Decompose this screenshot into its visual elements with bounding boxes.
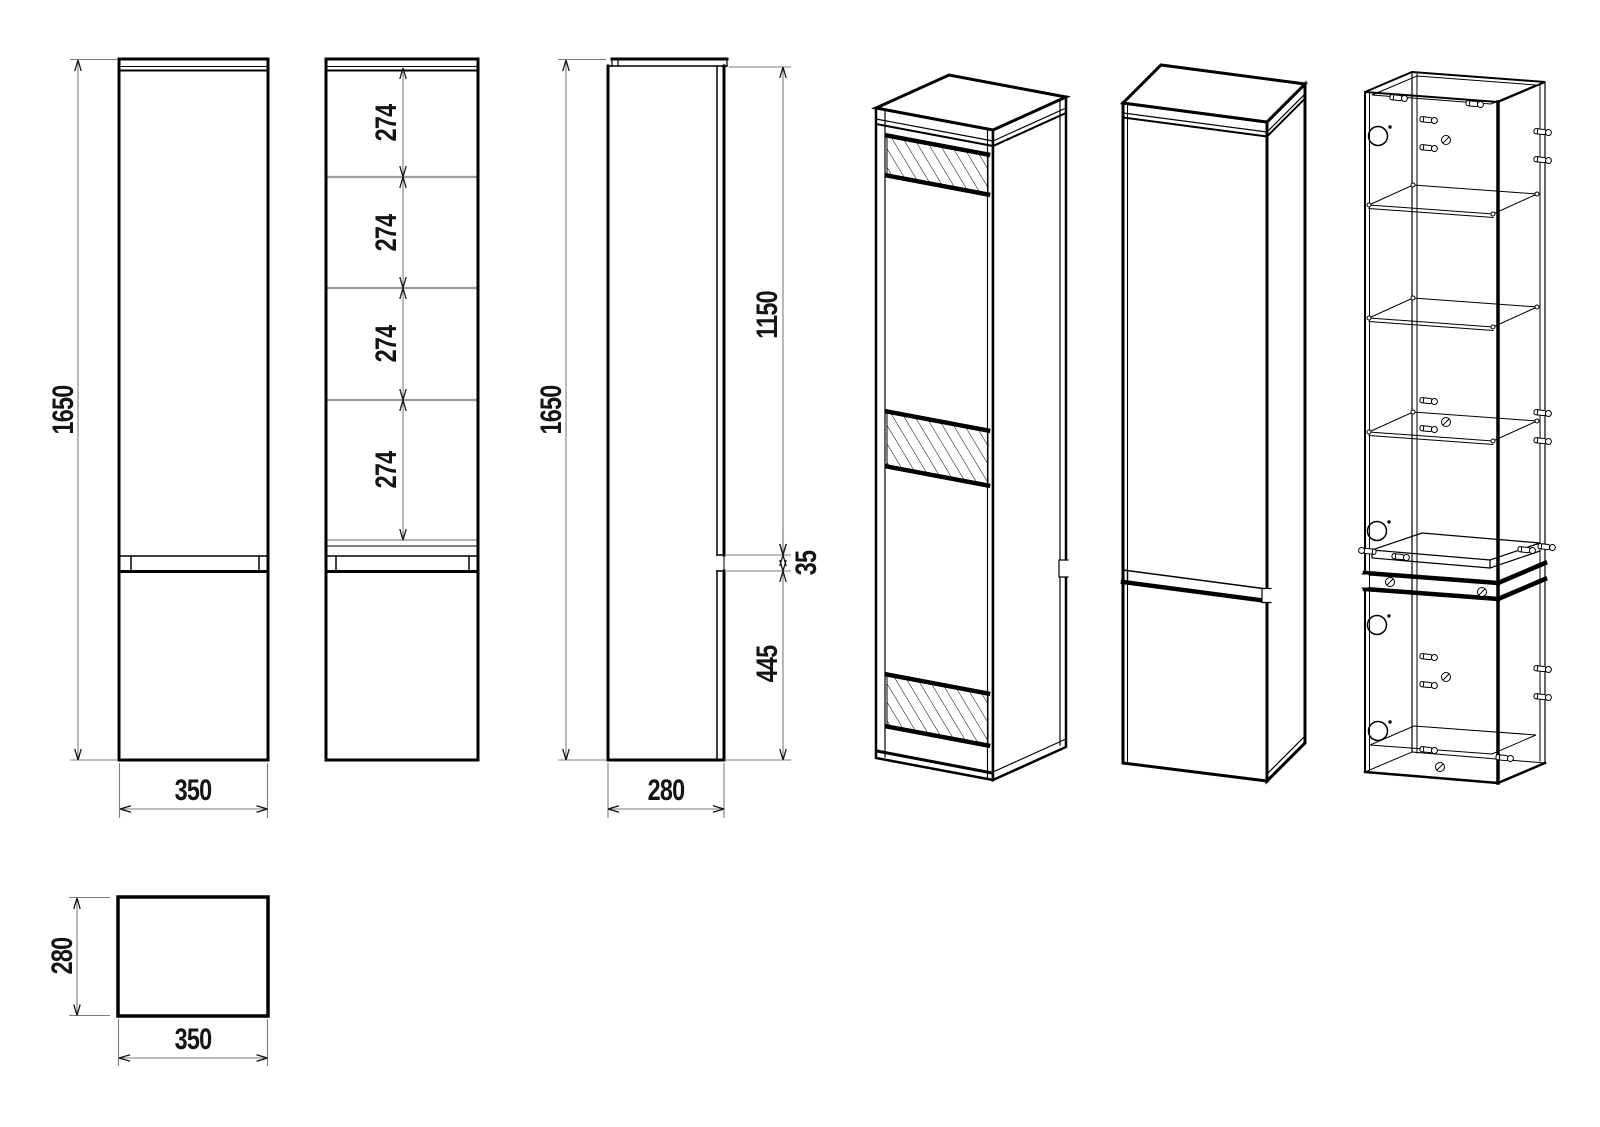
front-view: 1650 350 [46, 59, 268, 818]
screw-icon [1442, 136, 1451, 145]
technical-drawing-canvas: 1650 350 2 [0, 0, 1600, 1127]
dowel-pin-icon [1420, 653, 1438, 661]
hinge-hole [1369, 722, 1388, 741]
dowel-pin-icon [1518, 546, 1536, 554]
dowel-pin-icon [1534, 437, 1552, 445]
side-view: 1650 1150 35 445 280 [534, 59, 822, 818]
side-lower-label: 445 [750, 645, 783, 683]
iso3-bottom-front-edges [1365, 763, 1545, 783]
iso-view-wireframe [1358, 72, 1555, 783]
dowel-pin-icon [1420, 397, 1438, 405]
topview-width-label: 350 [175, 1022, 212, 1055]
iso2-front-face [1123, 103, 1267, 781]
front-height-dimension: 1650 [46, 60, 117, 761]
side-groove-dimension: 35 445 [726, 528, 823, 760]
dowel-pin-icon [1420, 681, 1438, 689]
top-width-dimension: 350 [119, 1019, 268, 1066]
iso-view-solid [1123, 65, 1305, 781]
side-height-dimension: 1650 [534, 60, 606, 761]
dowel-pin-icon [1358, 547, 1376, 555]
screw-icon [1442, 673, 1451, 682]
side-depth-dimension: 280 [608, 763, 724, 818]
side-top-panel [608, 59, 727, 66]
shelf-spacing-label-2: 274 [369, 214, 402, 252]
cabinet-technical-drawing: 1650 350 2 [0, 0, 1600, 1127]
dowel-pin-icon [1466, 100, 1484, 108]
iso2-groove-notch [1262, 588, 1271, 603]
iso1-groove-notch [1059, 560, 1069, 577]
hinge-hole [1369, 127, 1388, 146]
front-width-label: 350 [175, 773, 212, 806]
iso3-fittings [1358, 94, 1555, 771]
side-upper-dimension: 1150 [729, 67, 791, 555]
shelf-spacing-label-1: 274 [369, 104, 402, 142]
topview-depth-label: 280 [45, 938, 78, 975]
shelf-spacing-label-3: 274 [369, 325, 402, 363]
iso3-glass-shelf-2 [1367, 296, 1539, 331]
dowel-pin-icon [1534, 128, 1552, 136]
iso1-side-face [993, 97, 1066, 780]
dowel-pin-icon [1420, 425, 1438, 433]
dowel-pin-icon [1420, 116, 1438, 124]
screw-icon [1442, 418, 1451, 427]
front-shelves-outline [326, 59, 478, 760]
iso3-bottom-back-edges [1365, 752, 1545, 772]
dowel-pin-icon [1534, 665, 1552, 673]
dowel-pin-icon [1534, 156, 1552, 164]
iso2-side-face [1267, 84, 1305, 781]
side-body-fill [608, 66, 724, 760]
front-view-shelves: 274 274 274 274 [326, 59, 478, 760]
top-view: 280 350 [45, 897, 268, 1066]
screw-icon [1386, 578, 1395, 587]
dowel-pin-icon [1420, 144, 1438, 152]
iso3-glass-shelf-1 [1367, 183, 1539, 218]
hinge-hole [1368, 522, 1387, 541]
iso-view-hatched [876, 75, 1068, 780]
side-groove-label: 35 [789, 550, 822, 575]
front-height-label: 1650 [46, 386, 79, 435]
screw-icon [1436, 763, 1445, 772]
shelf-spacing-label-4: 274 [369, 451, 402, 489]
iso3-bottom-slab [1370, 726, 1536, 754]
front-width-dimension: 350 [120, 763, 268, 818]
hinge-hole [1368, 616, 1387, 635]
iso3-fixed-shelf [1372, 533, 1540, 568]
front-view-outline [119, 59, 268, 760]
top-view-outline [118, 897, 268, 1016]
dowel-pin-icon [1534, 409, 1552, 417]
top-depth-dimension: 280 [45, 898, 110, 1016]
side-upper-label: 1150 [750, 291, 783, 339]
dowel-pin-icon [1534, 693, 1552, 701]
side-height-label: 1650 [534, 386, 567, 435]
dowel-pin-icon [1390, 94, 1408, 102]
side-depth-label: 280 [648, 773, 685, 806]
screw-icon [1478, 588, 1487, 597]
iso3-glass-shelf-3 [1367, 410, 1539, 445]
